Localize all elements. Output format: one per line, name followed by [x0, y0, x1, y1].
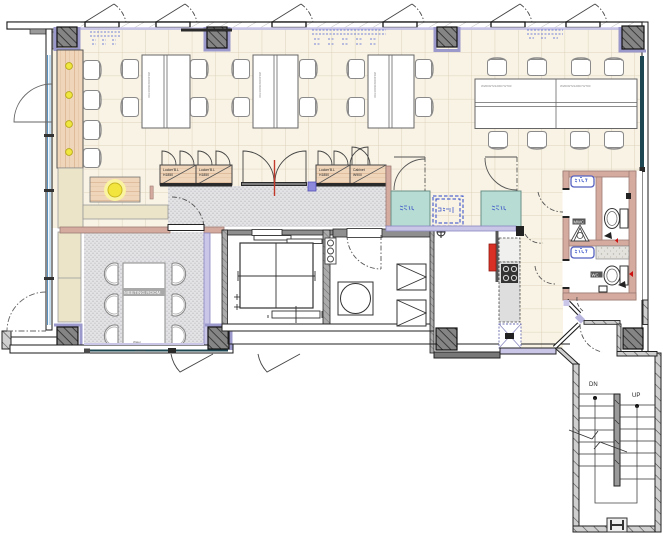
svg-text:DN: DN: [589, 382, 598, 388]
svg-text:W1200XD600X700: W1200XD600X700: [147, 72, 151, 98]
svg-text:W1200XD600X700: W1200XD600X700: [373, 72, 377, 98]
svg-text:Locker'B.L: Locker'B.L: [163, 168, 179, 172]
svg-text:H1850: H1850: [319, 173, 329, 177]
svg-text:MWC: MWC: [574, 220, 584, 225]
svg-text:Cabinet: Cabinet: [353, 168, 365, 172]
svg-text:UP: UP: [632, 393, 640, 399]
svg-text:Locker'B.L: Locker'B.L: [319, 168, 335, 172]
svg-text:H1850: H1850: [163, 173, 173, 177]
svg-text:W900: W900: [353, 173, 362, 177]
svg-text:W1200XD600X700: W1200XD600X700: [258, 72, 262, 98]
svg-text:Locker'B.L: Locker'B.L: [199, 168, 215, 172]
svg-text:Window: Window: [135, 349, 147, 353]
svg-text:WC: WC: [592, 273, 599, 278]
svg-text:W2000/721200/74/700: W2000/721200/74/700: [560, 84, 591, 88]
svg-text:H1850: H1850: [199, 173, 209, 177]
svg-text:W2000/721200/74/700: W2000/721200/74/700: [481, 84, 512, 88]
svg-text:MEETING ROOM: MEETING ROOM: [124, 290, 161, 295]
